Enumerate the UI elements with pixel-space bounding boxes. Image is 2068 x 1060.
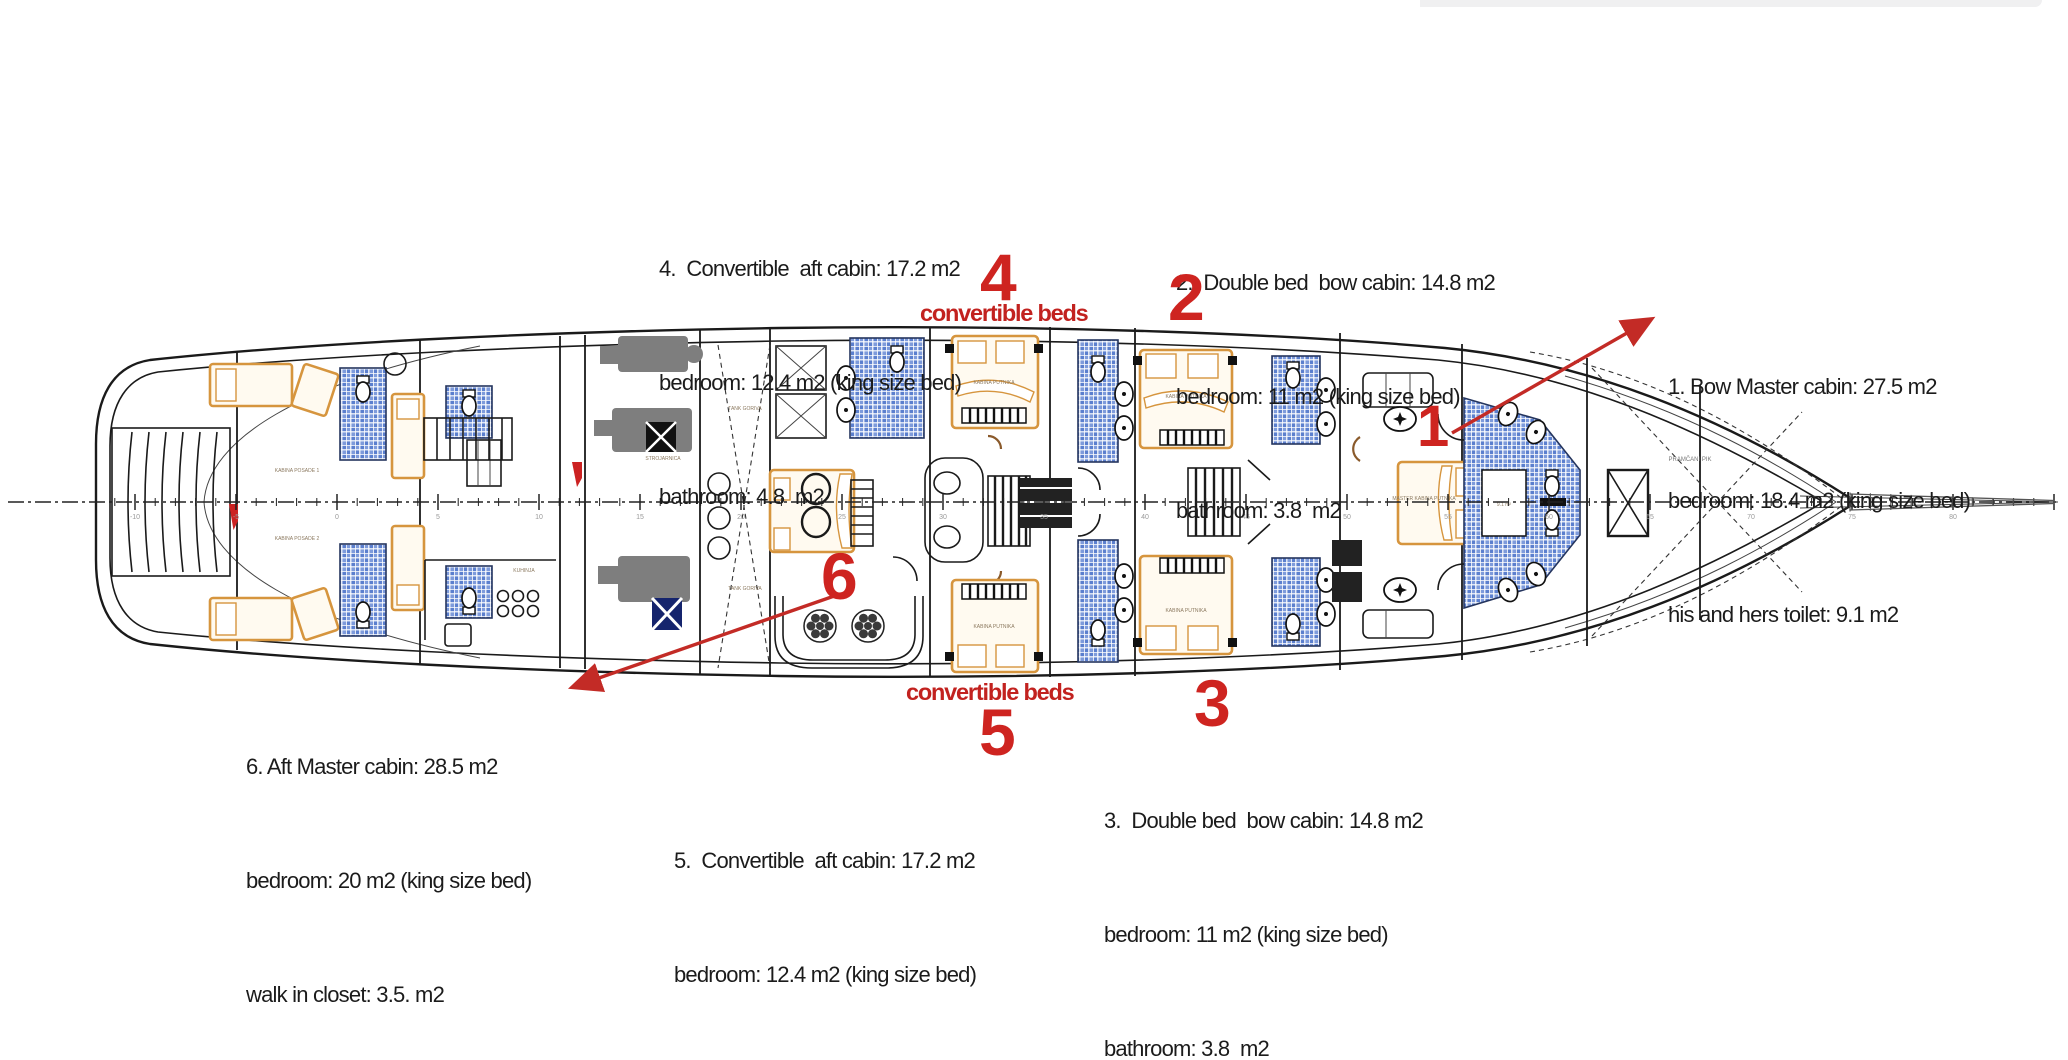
cabin-1-annotation: 1. Bow Master cabin: 27.5 m2 bedroom: 18… [1668,292,1970,710]
yacht-deck-plan-page: KABINA POSADE 1 KABINA POSADE 2 KUHINJA [0,0,2068,1060]
cabin-4-annotation: 4. Convertible aft cabin: 17.2 m2 bedroo… [659,174,961,592]
annotation-line: bathroom: 3.8 m2 [1176,492,1495,530]
svg-text:15: 15 [636,514,644,521]
cabin-5-marker: 5 [979,699,1015,765]
wc-area-label: 9.1 m² [1497,502,1512,508]
svg-text:5: 5 [436,514,440,521]
crew-cabin-1-label: KABINA POSADE 1 [275,468,320,474]
cabin-3-marker: 3 [1194,670,1230,736]
annotation-line: bedroom: 12.4 m2 (king size bed) [659,364,961,402]
annotation-line: 1. Bow Master cabin: 27.5 m2 [1668,368,1970,406]
annotation-line: 5. Convertible aft cabin: 17.2 m2 [674,842,976,880]
convertible-beds-label-bottom: convertible beds [906,681,1074,705]
galley-label: KUHINJA [513,568,535,574]
cabin-6-marker: 6 [821,543,857,609]
svg-text:40: 40 [1141,514,1149,521]
cabin-6-annotation: 6. Aft Master cabin: 28.5 m2 bedroom: 20… [246,672,531,1060]
crew-quarters: KABINA POSADE 1 KABINA POSADE 2 [210,353,501,640]
annotation-line: 6. Aft Master cabin: 28.5 m2 [246,748,531,786]
svg-text:65: 65 [1646,514,1654,521]
convertible-beds-label-top: convertible beds [920,302,1088,326]
red-pin-engine [572,462,582,487]
cabin-6-arrow [576,594,840,686]
annotation-line: bedroom: 20 m2 (king size bed) [246,862,531,900]
cabin3-bed-label: KABINA PUTNIKA [1165,608,1207,614]
svg-text:10: 10 [535,514,543,521]
cabin-3-annotation: 3. Double bed bow cabin: 14.8 m2 bedroom… [1104,726,1423,1060]
svg-text:35: 35 [1040,514,1048,521]
annotation-line: 4. Convertible aft cabin: 17.2 m2 [659,250,961,288]
cabin-2-marker: 2 [1168,264,1204,330]
cabin5-bed-label: KABINA PUTNIKA [973,624,1015,630]
annotation-line: bathroom: 3.8 m2 [1104,1030,1423,1060]
annotation-line: 2. Double bed bow cabin: 14.8 m2 [1176,264,1495,302]
svg-text:0: 0 [335,514,339,521]
annotation-line: walk in closet: 3.5. m2 [246,976,531,1014]
annotation-line: 3. Double bed bow cabin: 14.8 m2 [1104,802,1423,840]
annotation-line: his and hers toilet: 9.1 m2 [1668,596,1970,634]
cabin4-bed-label: KABINA PUTNIKA [973,380,1015,386]
svg-text:-5: -5 [233,514,239,521]
annotation-line: bedroom: 11 m2 (king size bed) [1104,916,1423,954]
cabin-1-marker: 1 [1417,398,1448,456]
svg-text:-10: -10 [130,514,140,521]
annotation-line: bathroom: 4.8 m2 [659,478,961,516]
window-edge-bar [1420,0,2042,7]
crew-cabin-2-label: KABINA POSADE 2 [275,536,320,542]
annotation-line: bedroom: 18.4 m2 (king size bed) [1668,482,1970,520]
svg-text:60: 60 [1545,514,1553,521]
annotation-line: bedroom: 12.4 m2 (king size bed) [674,956,976,994]
cabin-5-annotation: 5. Convertible aft cabin: 17.2 m2 bedroo… [674,766,976,1060]
